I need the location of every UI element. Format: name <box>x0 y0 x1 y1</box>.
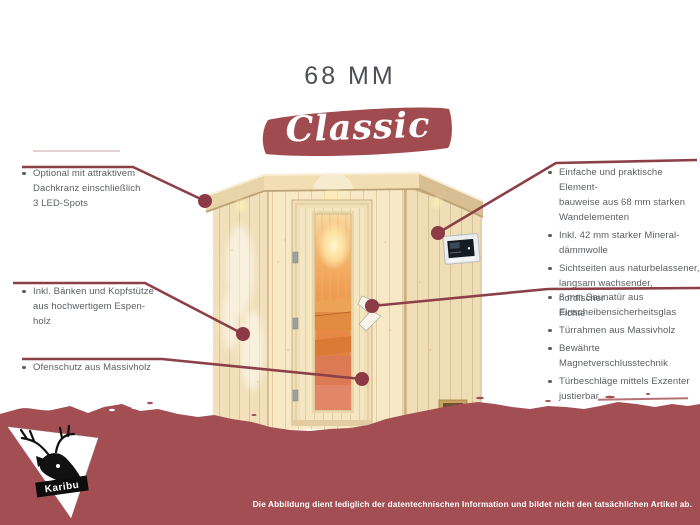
wall-right <box>405 186 482 428</box>
callout-dot-saunatuer <box>365 299 379 313</box>
feature-item: Inkl. 42 mm starker Mineral- dämmwolle <box>546 228 700 258</box>
led-spot-left-icon <box>233 197 249 215</box>
feature-item: Türrahmen aus Massivholz <box>546 323 700 338</box>
sauna-infographic: Karibu 68 MM Classic Optional mit attrak… <box>0 0 700 525</box>
callout-dot-wandelemente <box>431 226 445 240</box>
sauna-door <box>292 200 381 426</box>
callout-dot-dachkranz <box>198 194 212 208</box>
feature-item: Einfache und praktische Element- bauweis… <box>546 165 700 225</box>
led-spot-right-icon <box>429 194 445 212</box>
feature-item: Inkl. Bänken und Kopfstütze aus hochwert… <box>20 284 170 329</box>
feature-item: Bewährte Magnetverschlusstechnik <box>546 341 700 371</box>
product-title: 68 MM <box>0 62 700 91</box>
interior-lamp-glow <box>317 222 351 270</box>
feature-block-ofenschutz: Ofenschutz aus Massivholz <box>20 360 180 378</box>
feature-item: Türbeschläge mittels Exzenter justierbar <box>546 374 700 404</box>
feature-block-baenke: Inkl. Bänken und Kopfstütze aus hochwert… <box>20 284 170 332</box>
feature-item: Ofenschutz aus Massivholz <box>20 360 180 375</box>
feature-block-right-bottom: 8 mm Saunatür aus Einscheibensicherheits… <box>546 290 700 407</box>
sauna-interior <box>315 214 351 410</box>
feature-item: 8 mm Saunatür aus Einscheibensicherheits… <box>546 290 700 320</box>
series-logo-text: Classic <box>259 100 457 157</box>
callout-dot-ofenschutz <box>355 372 369 386</box>
feature-item: Optional mit attraktivem Dachkranz einsc… <box>20 166 170 211</box>
callout-dot-baenke <box>236 327 250 341</box>
disclaimer-text: Die Abbildung dient lediglich der datent… <box>253 500 692 509</box>
sauna-illustration <box>206 173 483 430</box>
door-sill <box>292 420 372 426</box>
feature-block-dachkranz: Optional mit attraktivem Dachkranz einsc… <box>20 166 170 214</box>
control-unit <box>443 233 480 264</box>
